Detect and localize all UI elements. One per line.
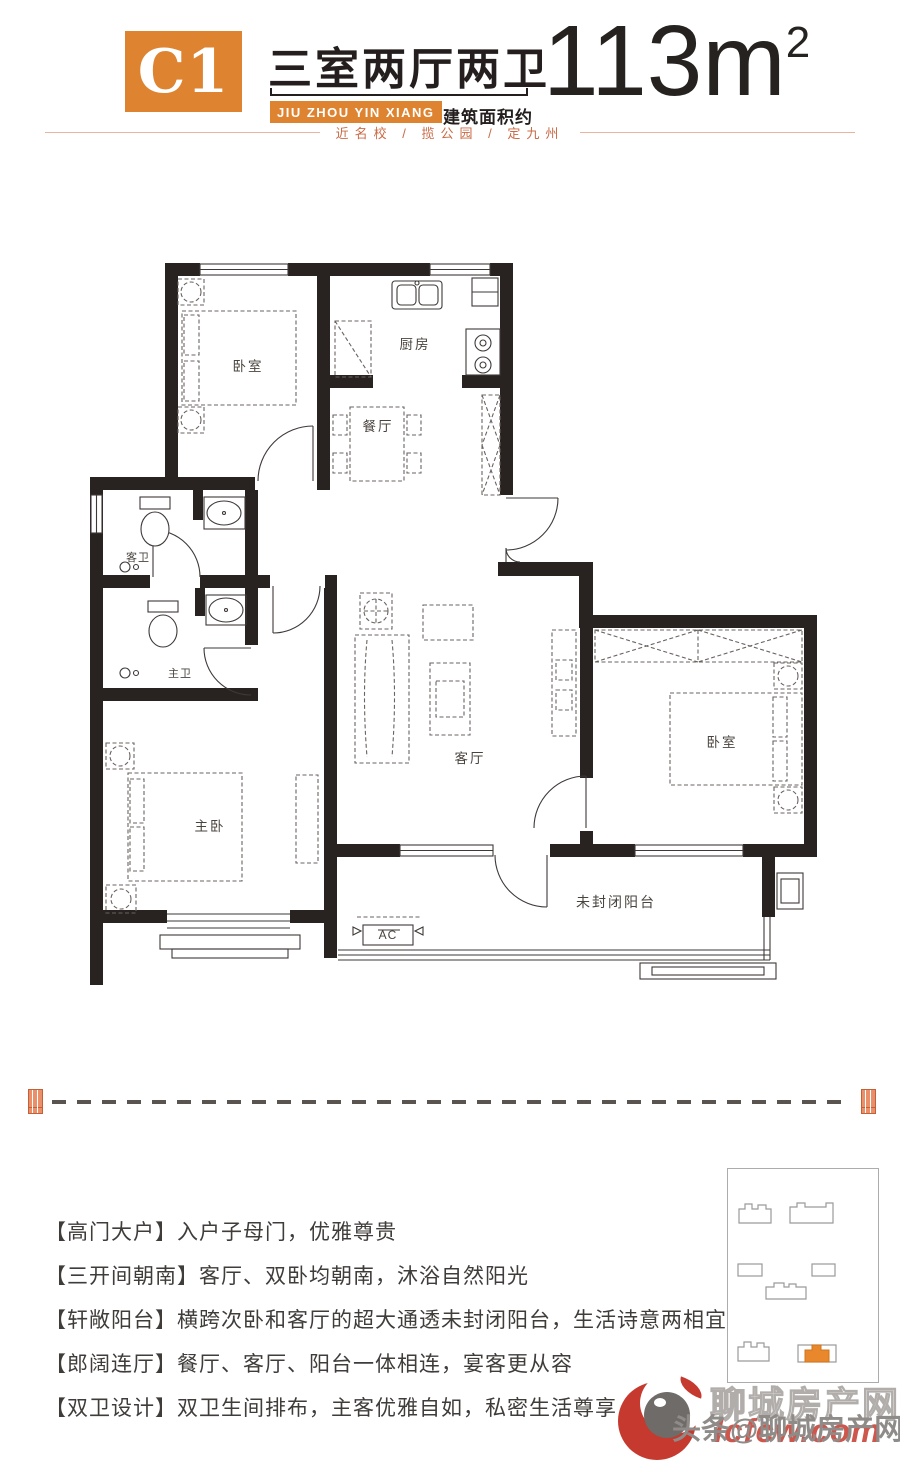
seal-stamp-icon xyxy=(861,1089,876,1114)
brand-name-en: JIU ZHOU YIN XIANG xyxy=(270,101,442,123)
walls xyxy=(90,263,817,985)
watermark-main-text: 头条@聊城房产网 xyxy=(672,1406,900,1448)
area-superscript: 2 xyxy=(786,18,810,67)
master-bath-fixtures xyxy=(120,595,246,678)
watermark: 聊城房产网 lcfcw.com 头条@聊城房产网 xyxy=(616,1376,900,1463)
seal-stamp-icon xyxy=(28,1089,43,1114)
feature-item: 【轩敞阳台】横跨次卧和客厅的超大通透未封闭阳台，生活诗意两相宜 xyxy=(45,1310,735,1332)
tagline-row: 近名校 / 揽公园 / 定九州 xyxy=(45,124,855,140)
windows xyxy=(91,264,743,958)
ac-label: AC xyxy=(379,928,398,942)
room-label-balcony: 未封闭阳台 xyxy=(576,894,656,910)
unit-code-badge: C1 xyxy=(125,31,242,112)
floor-plan: 卧室 厨房 餐厅 客卫 主卫 主卧 客厅 卧室 未封闭阳台 AC xyxy=(70,245,830,1015)
bedroom1-furniture xyxy=(178,279,296,433)
room-label-master-bedroom: 主卧 xyxy=(195,819,226,834)
room-label-bedroom1: 卧室 xyxy=(233,358,264,374)
area-value: 113m2 xyxy=(543,6,810,116)
room-label-bedroom2: 卧室 xyxy=(707,734,738,750)
feature-item: 【高门大户】入户子母门，优雅尊贵 xyxy=(45,1222,735,1244)
room-label-master-bath: 主卫 xyxy=(168,667,192,680)
area-number: 113m xyxy=(543,5,786,117)
site-plan-buildings xyxy=(738,1203,836,1362)
flyer-page: { "header": { "unit_code": "C1", "unit_t… xyxy=(0,0,900,1463)
room-label-guest-bath: 客卫 xyxy=(126,550,150,564)
site-plan-map xyxy=(727,1168,879,1383)
doors xyxy=(153,426,586,907)
living-furniture xyxy=(355,593,576,763)
unit-title: 三室两厅两卫 xyxy=(268,33,550,97)
feature-item: 【三开间朝南】客厅、双卧均朝南，沐浴自然阳光 xyxy=(45,1266,735,1288)
room-label-dining: 餐厅 xyxy=(363,419,394,434)
room-label-kitchen: 厨房 xyxy=(400,337,431,352)
dashed-divider xyxy=(52,1100,848,1104)
tagline-rule-left xyxy=(45,132,320,133)
room-label-living: 客厅 xyxy=(455,750,486,766)
bedroom2-furniture xyxy=(595,630,802,813)
shaft-hatch xyxy=(482,395,500,495)
kitchen-fixtures xyxy=(335,278,500,377)
title-underline xyxy=(270,94,528,96)
balcony-details xyxy=(338,873,803,979)
tagline-text: 近名校 / 揽公园 / 定九州 xyxy=(336,123,565,142)
tagline-rule-right xyxy=(580,132,855,133)
feature-item: 【郎阔连厅】餐厅、客厅、阳台一体相连，宴客更从容 xyxy=(45,1354,735,1376)
logo-eye-highlight xyxy=(654,1398,666,1407)
